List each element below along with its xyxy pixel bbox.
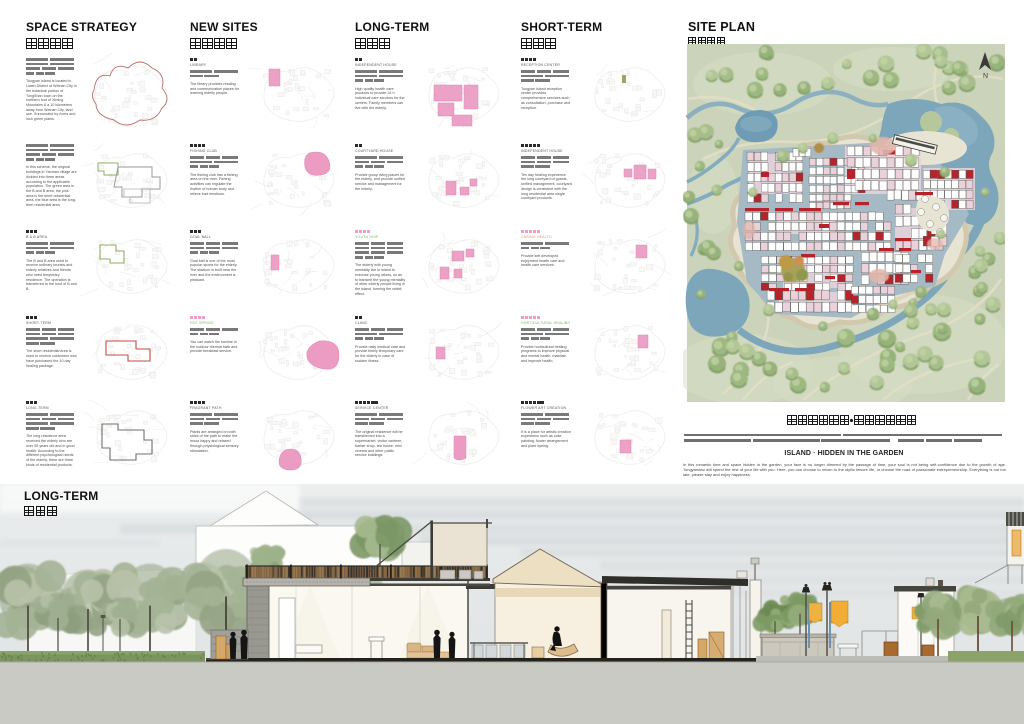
svg-text:N: N — [983, 73, 988, 80]
